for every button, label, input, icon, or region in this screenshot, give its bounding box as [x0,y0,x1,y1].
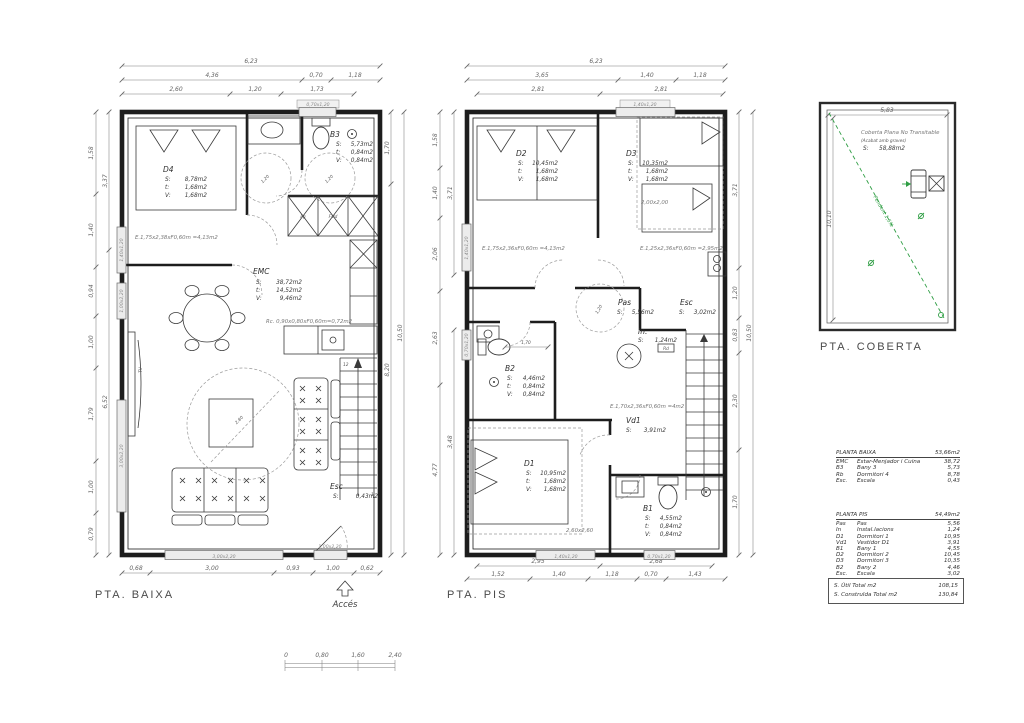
total-label: S. Útil Total m2 [834,582,876,591]
dim-label: 3,37 [102,174,109,188]
dim-label: 3,71 [447,186,454,199]
opening-label: 0,70x1,20 [306,102,329,108]
table-row: Esc.Escala3,02 [836,571,960,577]
room-area: 0,84m2 [351,158,374,164]
dim-label: 1,00 [88,480,95,494]
scale-label: 2,40 [388,652,402,659]
key: S: [638,338,644,344]
room-area: 1,68m2 [544,479,567,485]
room-name: Esc [330,482,344,491]
dim-label: 0,94 [88,284,95,298]
room-area: 1,68m2 [544,487,567,493]
dim-label: 6,23 [244,58,258,65]
dim-label: 2,63 [432,331,439,345]
key: S: [617,310,623,316]
table-title: PLANTA BAIXA [836,450,876,456]
key: S: [863,146,869,152]
room-area: 0,43m2 [356,494,379,500]
dim-label: 10,50 [746,324,753,341]
key: S: [507,376,513,382]
key: V: [507,392,513,398]
dim-label: 1,40 [432,186,439,200]
roof-area: 58,88m2 [879,146,905,152]
total-row: S. Construïda Total m2 130,84 [834,591,958,600]
table-title: PLANTA PIS [836,512,868,518]
rug-circle [187,368,299,480]
key: S: [526,471,532,477]
dim-label: 1,70 [384,141,391,155]
drawing-canvas: 6,23 4,36 0,70 1,18 2,60 1,20 1,73 1,58 … [0,0,1024,723]
room-area: 0,84m2 [523,392,546,398]
dim-label: 1,52 [491,571,505,578]
room-name: Pas [618,298,631,307]
plan-title-pis: PTA. PIS [447,589,507,601]
stair-number: 1 [371,492,374,498]
key: t: [628,169,632,175]
key: t: [256,288,260,294]
pis-room-labels: D2 S: 10,45m2 t: 1,68m2 V: 1,68m2 D3 S: … [482,149,723,538]
table-header: PLANTA BAIXA 53,66m2 [836,450,960,458]
dim-label: 4,77 [432,463,439,477]
dim-label: 1,18 [605,571,619,578]
dim-label: 1,00 [88,335,95,349]
room-area: 10,45m2 [532,161,558,167]
toilet-tank [312,118,330,126]
dim-label: 0,62 [360,565,374,572]
table-row: Esc.Escala0,43 [836,478,960,484]
key: S: [518,161,524,167]
dim-label: 1,58 [88,146,95,160]
pis-walls [467,112,725,555]
dim-label: 6,52 [102,395,109,409]
tv-unit [128,332,135,436]
room-area: 0,84m2 [523,384,546,390]
room-area: 0,84m2 [660,532,683,538]
baixa-openings: 0,70x1,20 1,40x1,20 1,00x2,20 3,00x2,20 … [117,100,347,560]
room-area: 1,68m2 [536,177,559,183]
key: t: [526,479,530,485]
annotation: 1,20 [324,174,335,185]
totals-box: S. Útil Total m2 108,15 S. Construïda To… [828,578,964,604]
chimney [902,170,944,198]
pis-dimensions: 6,23 3,65 1,40 1,18 2,81 2,81 1,58 1,40 … [432,58,755,581]
toilet-tank [658,477,678,485]
key: V: [336,158,342,164]
pis-furniture [468,117,726,534]
dim-label: 1,40 [552,571,566,578]
dim-label: 0,68 [129,565,143,572]
key: t: [336,150,340,156]
plan-title-baixa: PTA. BAIXA [95,589,174,601]
annotation: 1,20 [594,304,604,316]
room-area: 4,55m2 [660,516,683,522]
plan-title-coberta: PTA. COBERTA [820,341,923,353]
dim-label: 1,43 [688,571,702,578]
room-name: Vd1 [626,416,641,425]
row-name: Escala [857,571,934,577]
room-name: B3 [330,130,340,139]
dim-label: 8,20 [384,363,391,377]
pillow [150,130,178,152]
room-name: In. [638,327,647,336]
stair-number: 12 [343,362,349,368]
stairs-pis [686,334,723,496]
row-name: Escala [857,478,934,484]
dim-label: 2,30 [732,394,739,408]
sink-basin [261,122,283,138]
dim-label: 6,23 [589,58,603,65]
room-area: 8,78m2 [185,177,208,183]
key: S: [256,280,262,286]
total-row: S. Útil Total m2 108,15 [834,582,958,591]
stairs-up-arrow [700,334,708,342]
dim-label: 1,20 [732,286,739,300]
roof-note: (Acabat amb graves) [861,138,906,144]
room-area: 1,24m2 [655,338,678,344]
bed-d3b [642,184,712,232]
opening-label: 1,40x1,20 [464,236,470,259]
dim-label: 1,00 [326,565,340,572]
key: S: [679,310,685,316]
key: S: [645,516,651,522]
table-total: 54,49m2 [935,512,960,518]
opening-label: 1,00x2,20 [318,544,341,550]
annotation: E.1,75x2,36xF0,60m =4,13m2 [482,246,565,252]
room-area: 9,46m2 [280,296,303,302]
room-area: 1,68m2 [646,169,669,175]
room-name: D1 [524,459,535,468]
kitchen-sink [322,330,344,350]
opening-label: 1,40x1,20 [554,554,577,560]
opening-label: 1,00x2,20 [119,289,125,312]
stairs-baixa [340,358,377,500]
room-area: 0,84m2 [660,524,683,530]
sofa-set [172,378,340,525]
row-abbr: Esc. [836,478,857,484]
dim-label: 0,93 [286,565,300,572]
dim-label: 1,79 [88,407,95,421]
annotation: Rd [663,346,669,352]
room-area: 1,68m2 [185,185,208,191]
dim-label: 2,81 [654,86,667,93]
dim-label: 1,20 [248,86,262,93]
room-name: D3 [626,149,637,158]
plan-coberta: 5,83 10,10 Pendent 1,5% Coberta Plana No… [820,103,955,330]
room-name: B2 [505,364,515,373]
annotation: E.1,75x2,38xF0,60m =4,13m2 [135,235,218,241]
dim-label: 10,50 [397,324,404,341]
opening-label: 3,00x2,20 [212,554,235,560]
key: t: [165,185,169,191]
dim-label: 1,40 [640,72,654,79]
access-arrow-icon [337,581,353,596]
total-label: S. Construïda Total m2 [834,591,897,600]
key: S: [333,494,339,500]
stairs-up-arrow [354,358,362,368]
total-value: 130,84 [938,591,958,600]
opening-label: 0,70x1,20 [647,554,670,560]
dim-label: 0,70 [309,72,323,79]
room-name: Esc [680,298,694,307]
key: S: [336,142,342,148]
opening-label: 1,40x1,20 [119,238,125,261]
room-area: 1,68m2 [646,177,669,183]
dim-label: 0,79 [88,527,95,541]
plan-baixa: 6,23 4,36 0,70 1,18 2,60 1,20 1,73 1,58 … [88,58,406,575]
key: S: [165,177,171,183]
room-area: 0,84m2 [351,150,374,156]
dim-label: 2,06 [432,247,439,261]
room-name: D4 [163,165,174,174]
plan-pis: 6,23 3,65 1,40 1,18 2,81 2,81 1,58 1,40 … [432,58,755,581]
annotation: Rc. 0,90x0,80xF0,60m=0,72m2 [266,319,353,325]
bath-counter [248,116,300,144]
room-area: 5,73m2 [351,142,374,148]
key: V: [526,487,532,493]
roof-drain-icon [868,213,944,318]
bed-d3 [640,118,723,166]
annotation: Fsld [329,214,338,220]
dim-label: 2,81 [531,86,544,93]
annotation: 2,80 [234,415,245,426]
key: S: [626,428,632,434]
dim-label: 1,40 [88,223,95,237]
annotation: E.1,25x2,36xF0,60m =2,95m2 [640,246,723,252]
scale-label: 1,60 [351,652,365,659]
key: V: [256,296,262,302]
room-area: 3,02m2 [694,310,717,316]
kitchen-column [350,240,377,324]
scale-label: 0 [284,652,288,659]
scale-label: 0,80 [315,652,329,659]
room-name: B1 [643,504,653,513]
row-abbr: Esc. [836,571,857,577]
room-area: 14,52m2 [276,288,302,294]
key: t: [518,169,522,175]
dim-label: 5,83 [880,107,894,114]
opening-label: 0,70x1,20 [464,333,470,356]
table-planta-pis: PLANTA PIS 54,49m2 PasPas5,56 InInstal.l… [836,512,960,577]
dim-label: 2,60 [169,86,183,93]
table-total: 53,66m2 [935,450,960,456]
floorplan-sheet: 6,23 4,36 0,70 1,18 2,60 1,20 1,73 1,58 … [0,0,1024,723]
room-name: EMC [253,267,270,276]
dim-label: 0,70 [644,571,658,578]
dim-label: 4,36 [205,72,219,79]
room-name: D2 [516,149,527,158]
dim-label: 1,18 [348,72,362,79]
room-area: 10,35m2 [642,161,668,167]
key: V: [165,193,171,199]
roof-slope-label: Pendent 1,5% [872,195,895,228]
dim-label: 3,71 [732,183,739,196]
toilet-bowl [659,485,677,509]
table-header: PLANTA PIS 54,49m2 [836,512,960,520]
access-marker: Accés [332,581,358,610]
dim-label: 0,83 [732,328,739,342]
key: V: [518,177,524,183]
table-planta-baixa: PLANTA BAIXA 53,66m2 EMCEstar-Menjador i… [836,450,960,484]
annotation: TV [138,366,144,373]
room-area: 1,68m2 [536,169,559,175]
opening-label: 1,40x1,20 [633,102,656,108]
key: V: [645,532,651,538]
annotation: Fg [300,214,305,220]
room-area: 5,56m2 [632,310,655,316]
coffee-table [209,399,253,447]
scale-bar: 0 0,80 1,60 2,40 [284,652,402,671]
room-area: 3,91m2 [644,428,667,434]
annotation: 2,60x2,60 [566,528,594,534]
room-area: 4,46m2 [523,376,546,382]
baixa-room-labels: D4 S: 8,78m2 t: 1,68m2 V: 1,68m2 B3 S: 5… [135,130,378,500]
room-area: 1,68m2 [185,193,208,199]
dim-label: 1,70 [732,495,739,509]
dim-label: 1,18 [693,72,707,79]
dim-label: 3,00 [205,565,219,572]
annotation: 2,00x2,00 [641,200,669,206]
key: t: [507,384,511,390]
room-area: 38,72m2 [276,280,302,286]
row-value: 0,43 [934,478,960,484]
annotation: 1,70 [521,340,531,346]
dim-label: 1,58 [432,133,439,147]
opening-label: 3,00x2,20 [119,444,125,467]
room-area: 10,95m2 [540,471,566,477]
dim-label: 10,10 [826,210,833,227]
row-value: 3,02 [934,571,960,577]
toilet-tank [478,339,486,355]
dim-label: 1,73 [310,86,324,93]
toilet-bowl [313,127,329,149]
dim-label: 3,65 [535,72,549,79]
key: t: [645,524,649,530]
total-value: 108,15 [938,582,958,591]
pillow [192,130,220,152]
access-label: Accés [332,599,358,610]
annotation: E.1,70x2,36xF0,60m =4m2 [610,404,685,410]
roof-note: Coberta Plana No Transitable [861,130,940,136]
annotation: 1,20 [260,174,271,185]
dining-table [183,294,231,342]
dim-label: 3,48 [447,435,454,449]
key: V: [628,177,634,183]
key: S: [628,161,634,167]
